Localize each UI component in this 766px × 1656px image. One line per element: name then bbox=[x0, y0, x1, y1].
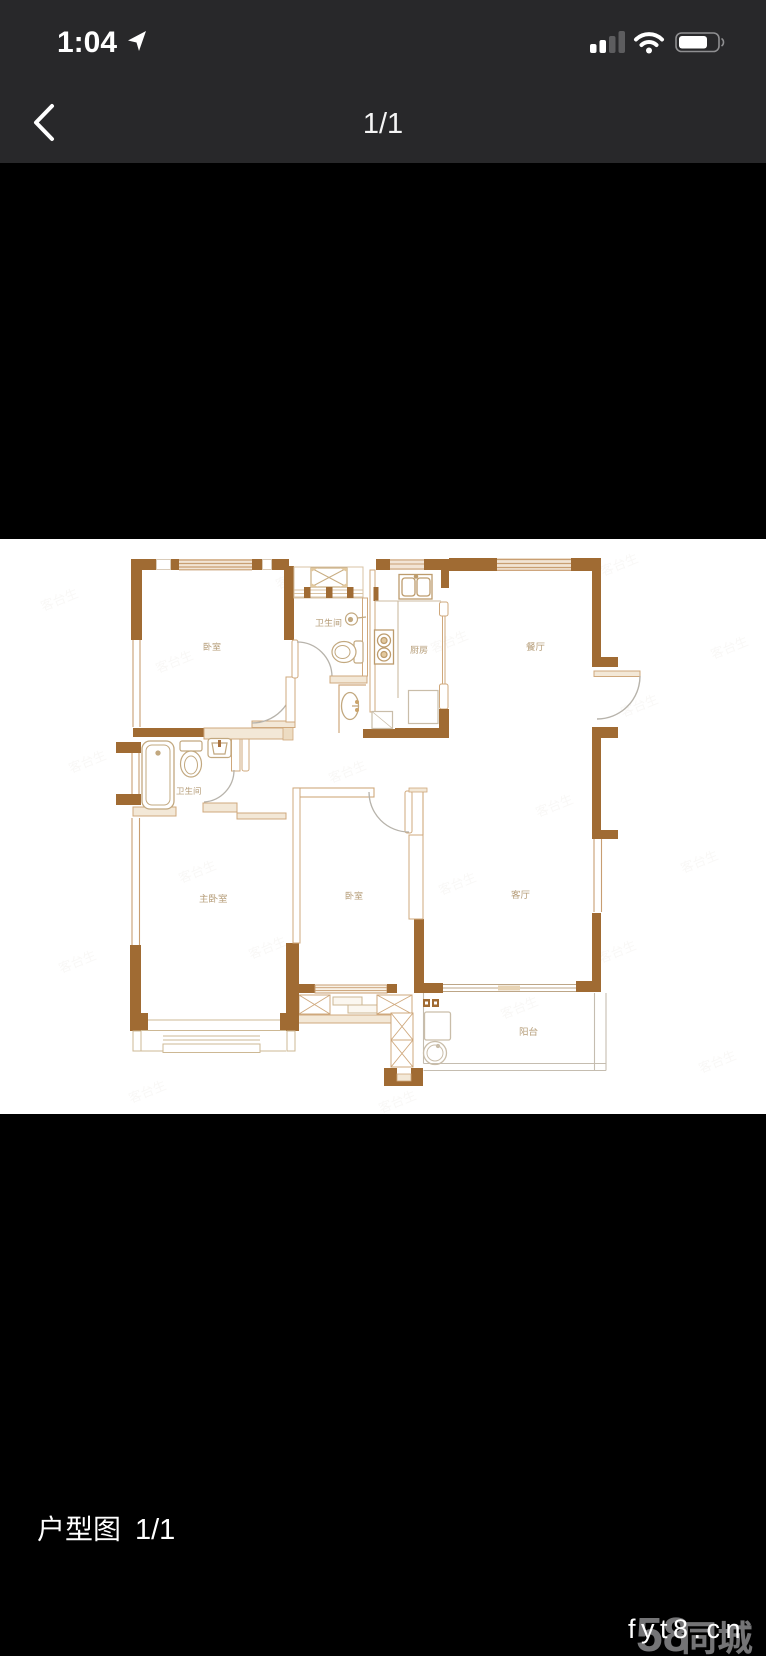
svg-text:1/1: 1/1 bbox=[363, 108, 403, 140]
svg-text:1:04: 1:04 bbox=[57, 26, 117, 59]
svg-text:1/1: 1/1 bbox=[135, 1514, 175, 1546]
svg-text:fyt8.cn: fyt8.cn bbox=[628, 1614, 746, 1644]
